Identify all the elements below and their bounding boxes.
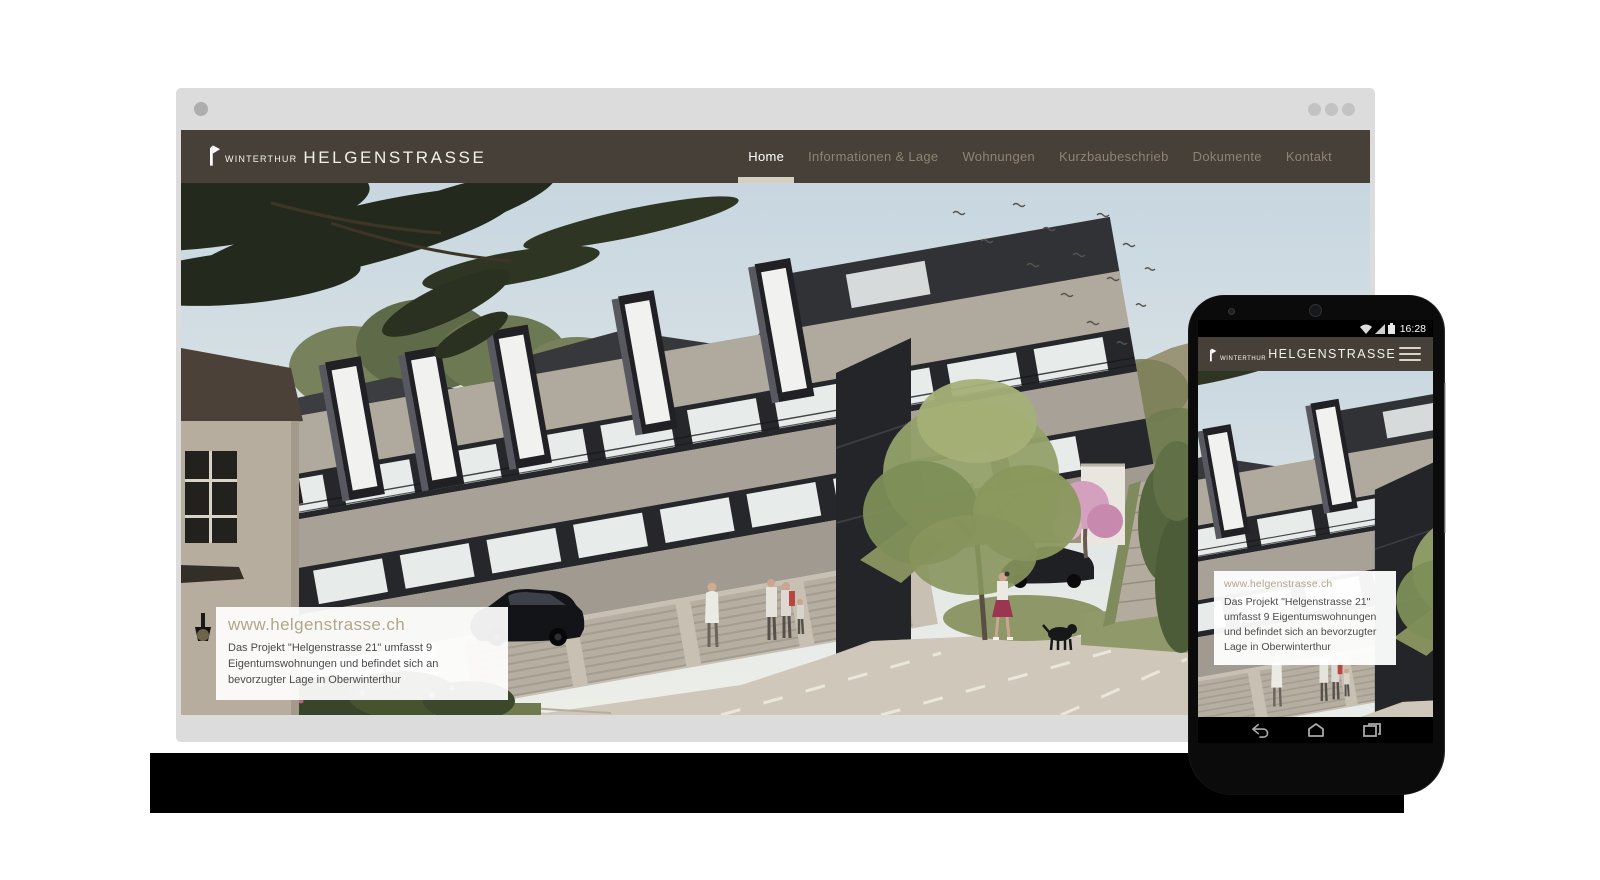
android-navbar: [1198, 717, 1433, 743]
window-dot-icon: [1308, 103, 1321, 116]
nav-item-wohnungen[interactable]: Wohnungen: [962, 130, 1035, 183]
android-statusbar: 16:28: [1198, 320, 1433, 337]
nav-item-kurzbaubeschrieb[interactable]: Kurzbaubeschrieb: [1059, 130, 1169, 183]
phone-side-highlight: [1444, 383, 1446, 533]
recents-icon[interactable]: [1361, 722, 1383, 738]
hero-infobox: www.helgenstrasse.ch Das Projekt "Helgen…: [216, 607, 508, 700]
infobox-url: www.helgenstrasse.ch: [228, 615, 496, 635]
hamburger-menu-icon[interactable]: [1399, 347, 1421, 361]
window-dot-icon: [1342, 103, 1355, 116]
hero-infobox: www.helgenstrasse.ch Das Projekt "Helgen…: [1214, 571, 1396, 665]
mockup-stage: WINTERTHUR HELGENSTRASSE Home Informatio…: [0, 0, 1600, 880]
phone-site-navbar: WINTERTHUR HELGENSTRASSE: [1198, 337, 1433, 371]
window-controls: [1308, 103, 1355, 116]
browser-topbar: [176, 88, 1375, 130]
signal-icon: [1375, 324, 1385, 334]
logo-title: HELGENSTRASSE: [1268, 347, 1396, 361]
infobox-url: www.helgenstrasse.ch: [1224, 578, 1386, 590]
site-navbar: WINTERTHUR HELGENSTRASSE Home Informatio…: [181, 130, 1370, 183]
wifi-icon: [1360, 324, 1372, 334]
phone-speaker-icon: [1309, 304, 1322, 317]
phone-hero-section: www.helgenstrasse.ch Das Projekt "Helgen…: [1198, 371, 1433, 743]
home-icon[interactable]: [1305, 722, 1327, 738]
back-icon[interactable]: [1249, 722, 1271, 738]
logo-title: HELGENSTRASSE: [301, 148, 486, 168]
main-menu: Home Informationen & Lage Wohnungen Kurz…: [748, 130, 1332, 183]
nav-item-informationen-lage[interactable]: Informationen & Lage: [808, 130, 938, 183]
phone-mockup: 16:28 WINTERTHUR HELGENSTRASSE www.helge…: [1188, 295, 1445, 795]
hero-image: [1198, 371, 1433, 743]
status-time: 16:28: [1400, 323, 1426, 335]
window-dot-icon: [194, 102, 208, 116]
logo-mark-icon: [210, 145, 221, 166]
logo-mark-icon: [1210, 348, 1217, 362]
nav-item-home[interactable]: Home: [748, 130, 784, 183]
nav-item-kontakt[interactable]: Kontakt: [1286, 130, 1332, 183]
site-logo[interactable]: WINTERTHUR HELGENSTRASSE: [210, 145, 486, 168]
infobox-description: Das Projekt "Helgenstrasse 21" umfasst 9…: [1224, 595, 1386, 655]
nav-item-dokumente[interactable]: Dokumente: [1193, 130, 1262, 183]
window-dot-icon: [1325, 103, 1338, 116]
logo-city: WINTERTHUR: [1220, 356, 1266, 362]
phone-camera-icon: [1228, 308, 1235, 315]
battery-icon: [1388, 323, 1395, 334]
phone-screen: 16:28 WINTERTHUR HELGENSTRASSE www.helge…: [1198, 320, 1433, 743]
infobox-description: Das Projekt "Helgenstrasse 21" umfasst 9…: [228, 640, 496, 688]
logo-city: WINTERTHUR: [225, 154, 297, 168]
